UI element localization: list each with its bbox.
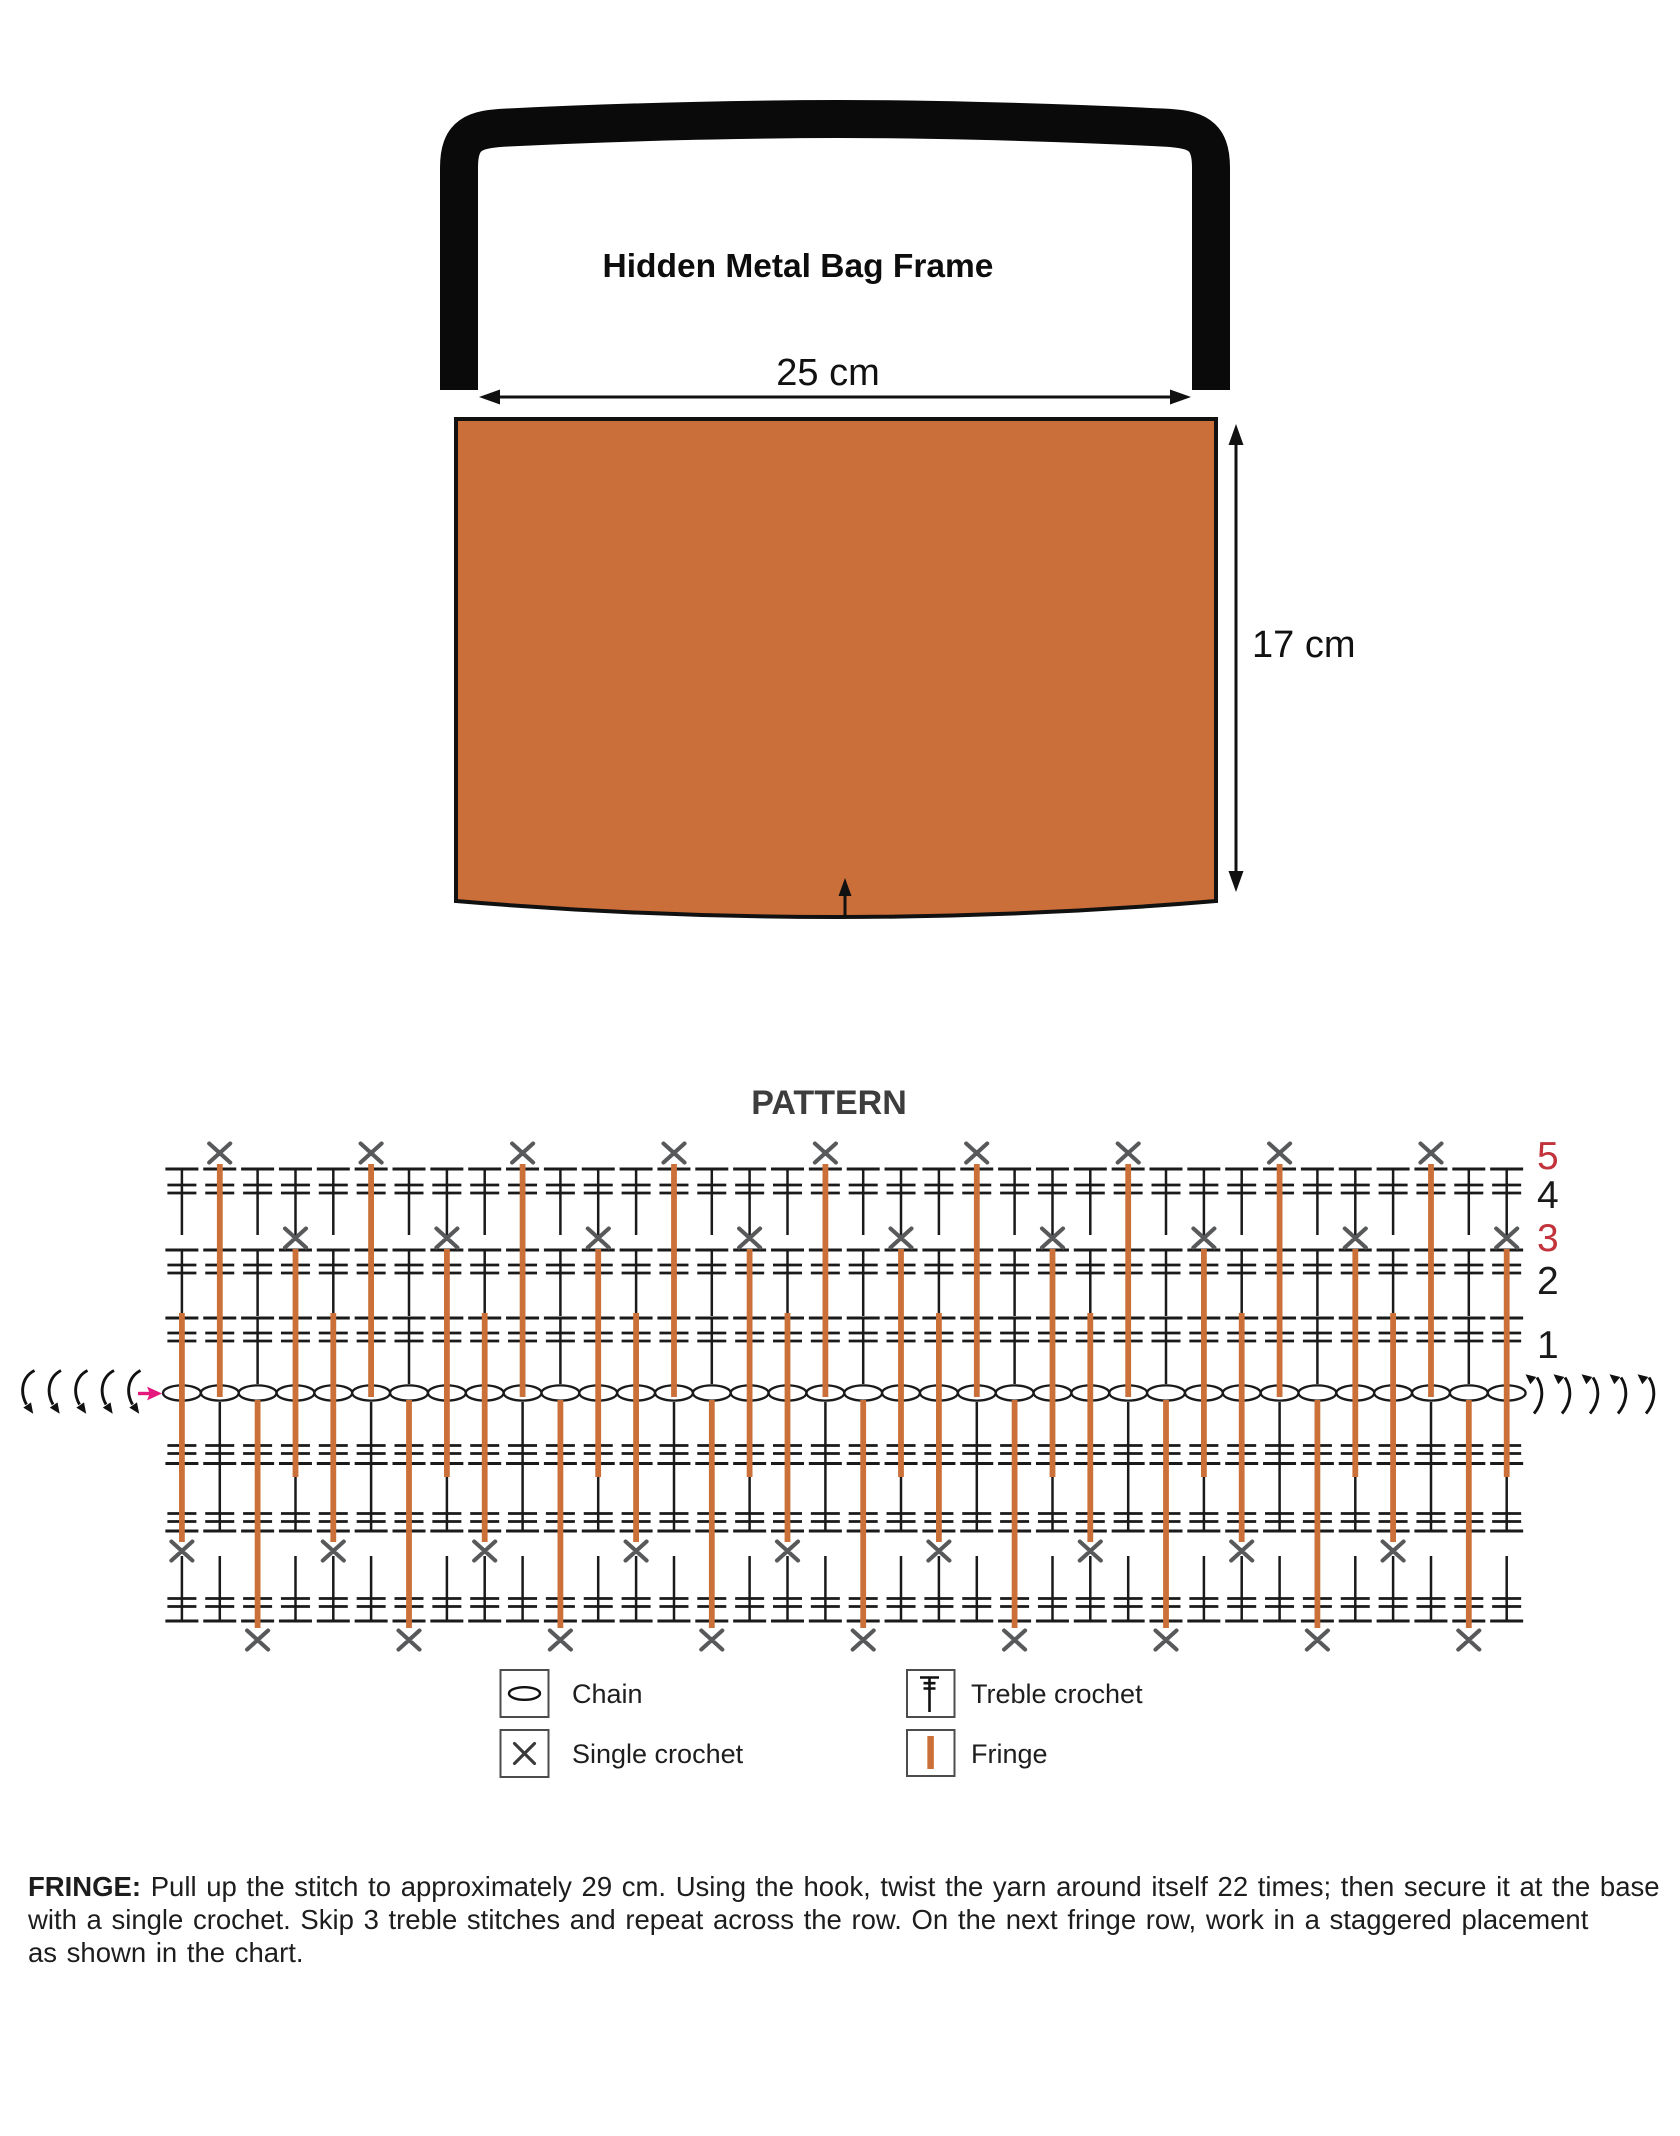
svg-text:Fringe: Fringe [971, 1739, 1048, 1769]
svg-text:Treble crochet: Treble crochet [971, 1679, 1143, 1709]
svg-text:4: 4 [1537, 1174, 1559, 1217]
svg-text:Single crochet: Single crochet [572, 1739, 744, 1769]
svg-text:Chain: Chain [572, 1679, 643, 1709]
svg-text:25 cm: 25 cm [776, 352, 879, 394]
svg-text:1: 1 [1537, 1324, 1559, 1367]
svg-text:17 cm: 17 cm [1252, 624, 1355, 666]
svg-text:3: 3 [1537, 1217, 1559, 1260]
svg-text:5: 5 [1537, 1135, 1559, 1178]
svg-text:2: 2 [1537, 1260, 1559, 1303]
svg-text:Hidden Metal Bag Frame: Hidden Metal Bag Frame [603, 248, 994, 285]
